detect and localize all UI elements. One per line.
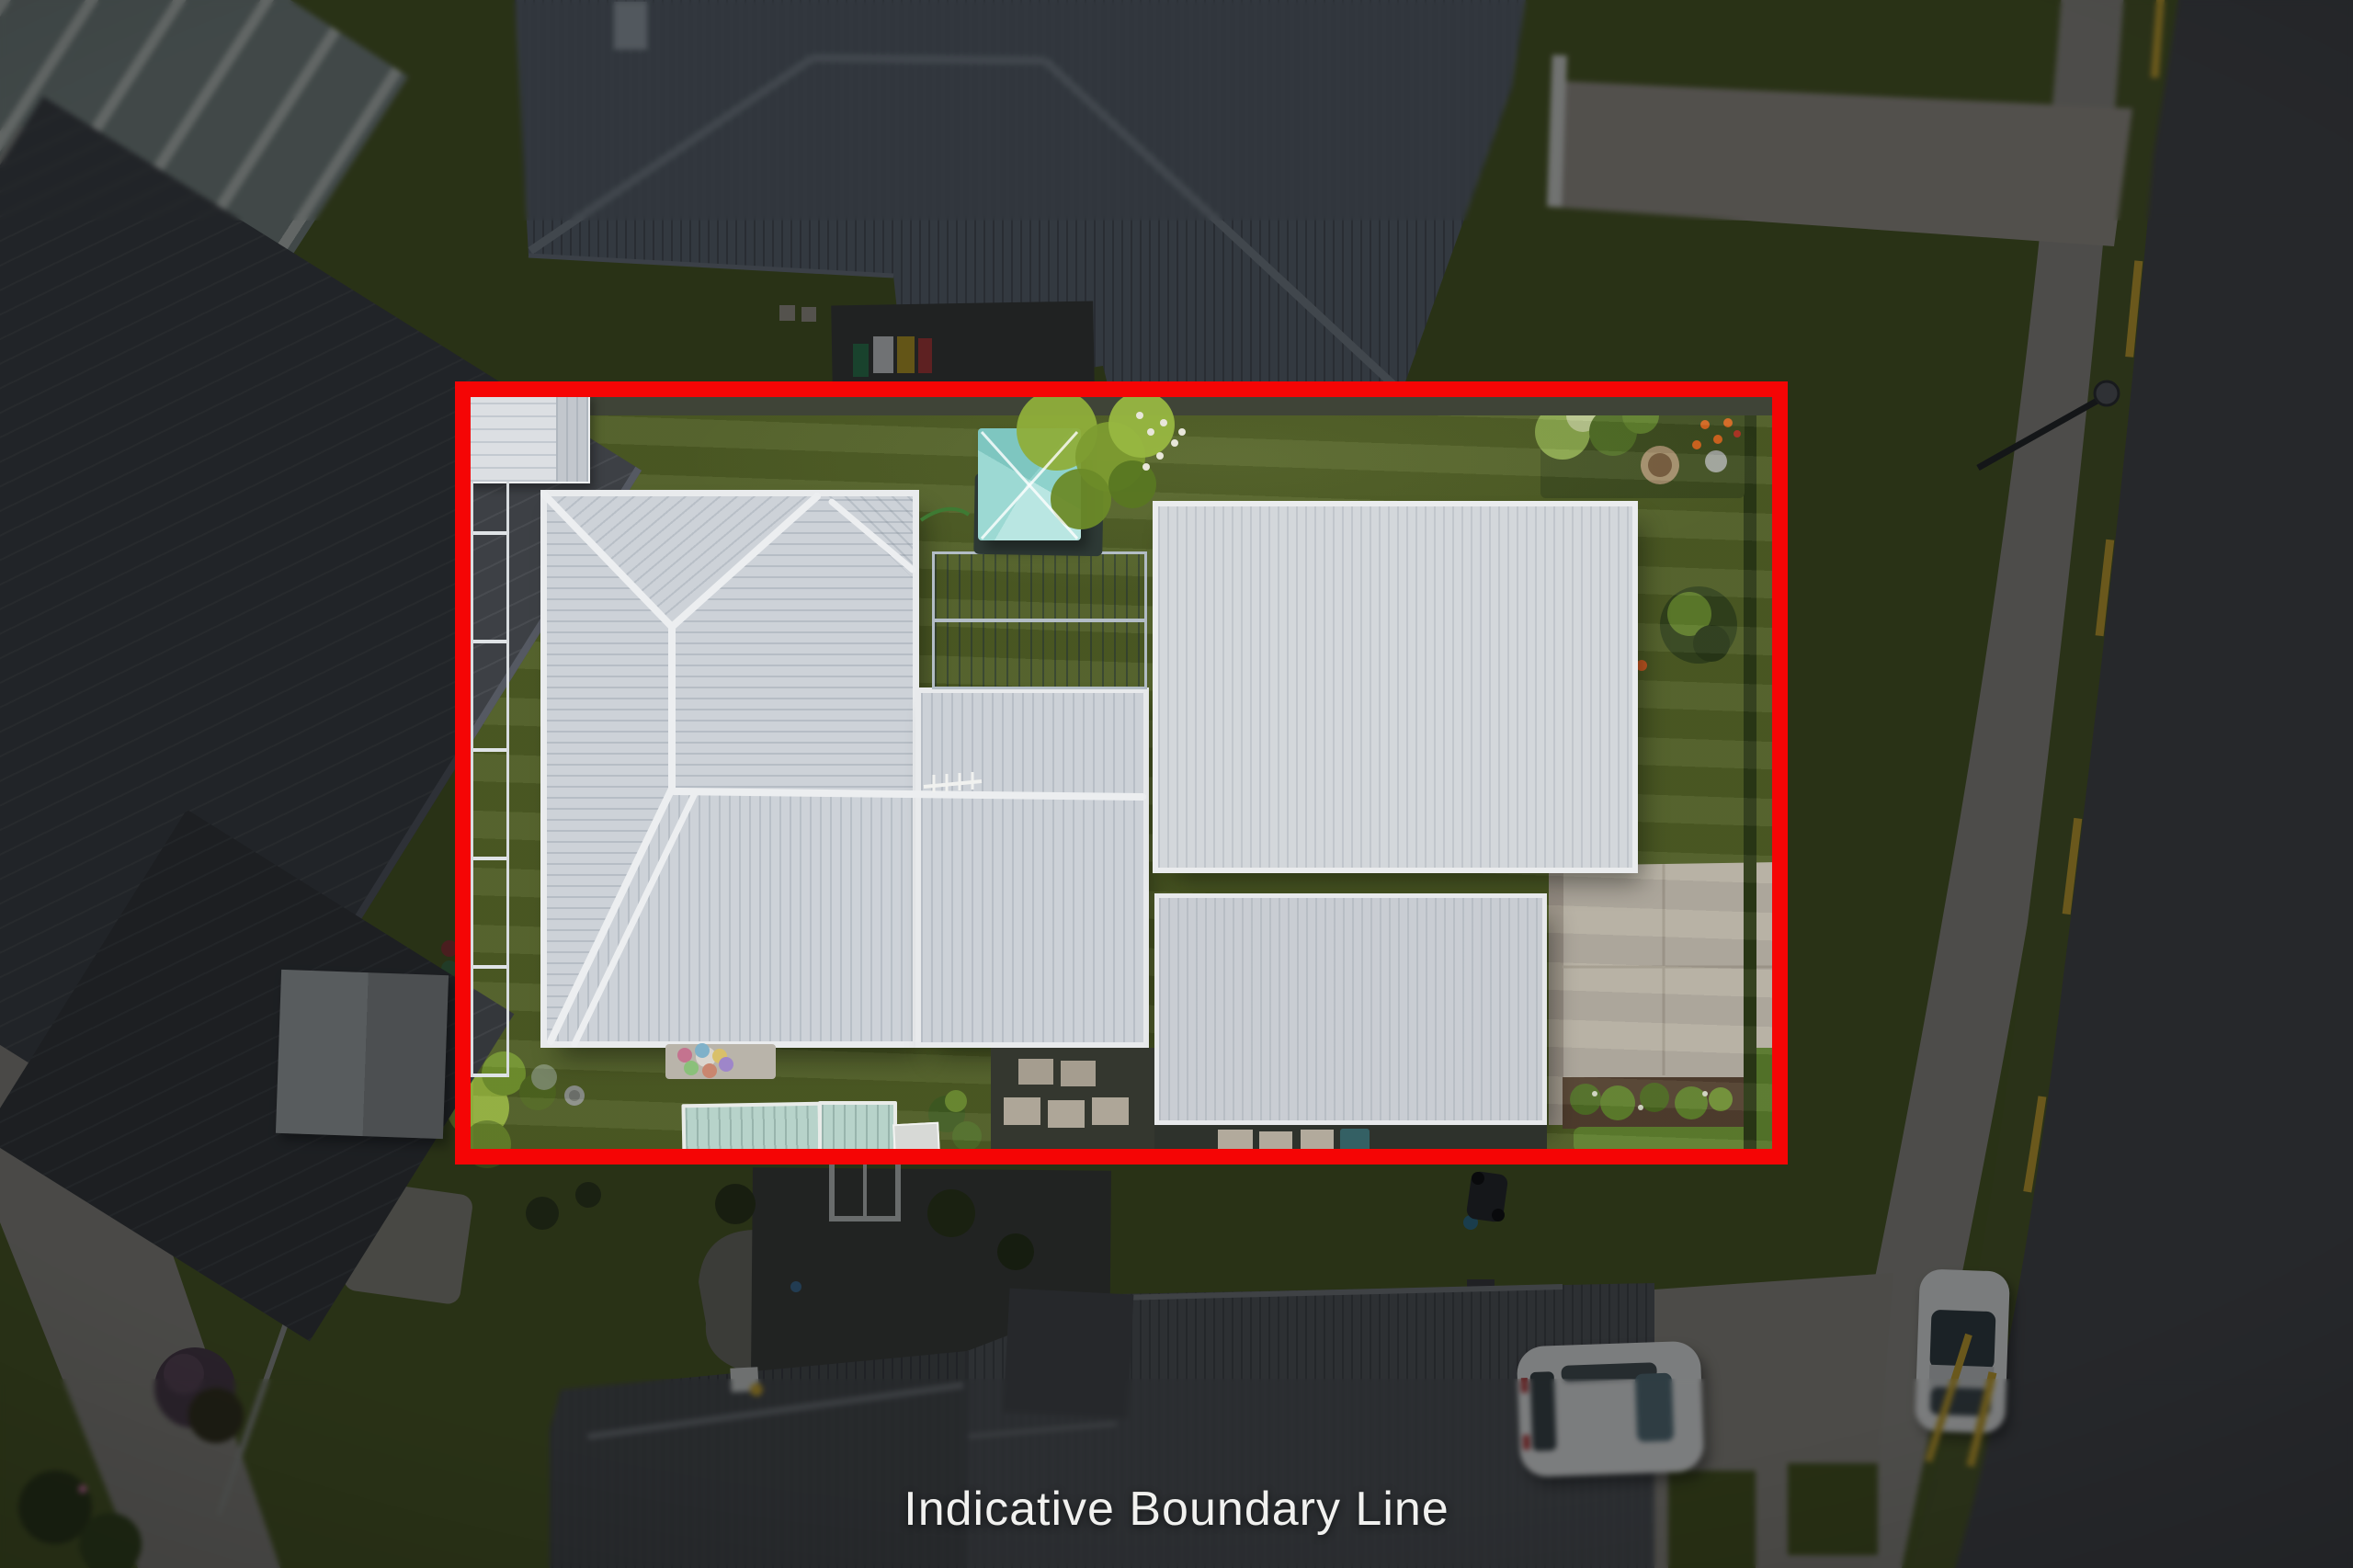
caption-text: Indicative Boundary Line	[0, 1482, 2353, 1537]
blur-band-top	[0, 0, 2353, 221]
aerial-property-photo: Indicative Boundary Line	[0, 0, 2353, 1568]
road-marking-dashed	[1938, 0, 2162, 1568]
street-light	[1978, 381, 2119, 468]
motorbike	[1466, 1170, 1509, 1222]
boundary-rectangle	[455, 381, 1788, 1165]
patio-pergola-frame	[832, 1162, 898, 1219]
blur-band-bottom	[0, 1379, 2353, 1568]
toy-blue	[790, 1281, 801, 1292]
